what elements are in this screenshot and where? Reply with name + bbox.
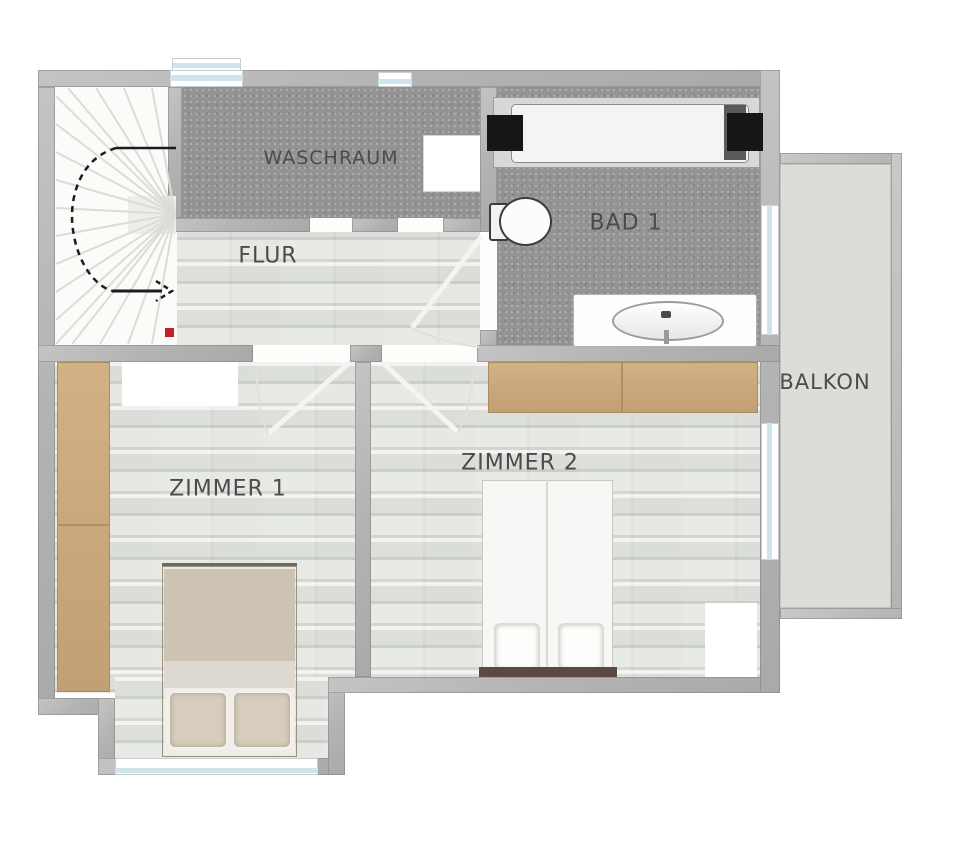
wall-exterior-right — [760, 70, 780, 693]
bathtub-tap-right — [727, 113, 763, 151]
stair-marker — [165, 328, 174, 337]
zimmer2-sideboard — [488, 362, 758, 413]
room-label-zimmer2: ZIMMER 2 — [461, 451, 579, 476]
zimmer2-nightstand — [705, 603, 757, 677]
zimmer1-dresser — [122, 360, 238, 406]
bathtub-basin — [511, 104, 749, 163]
door-opening-zimmer1 — [253, 345, 350, 362]
door-opening-bad1 — [480, 232, 497, 330]
room-label-zimmer1: ZIMMER 1 — [169, 477, 287, 502]
door-opening-zimmer2 — [382, 345, 477, 362]
zimmer1-pillow-left — [167, 690, 229, 750]
zimmer1-bed-sheetband — [164, 661, 295, 688]
wall-exterior-bottom — [328, 677, 777, 693]
wall-waschraum-flur-a — [168, 218, 310, 232]
window-waschraum-top — [170, 70, 243, 87]
window-top-small — [378, 72, 412, 87]
zimmer2-pillow-left — [494, 623, 540, 671]
window-zimmer2-glass — [767, 423, 772, 560]
sink-tap-stem — [664, 330, 669, 344]
balcony-rail-bottom — [780, 608, 902, 619]
wall-waschraum-flur-b — [352, 218, 398, 232]
window-bad1-glass — [767, 205, 772, 335]
wall-zimmer1-zimmer2 — [355, 362, 371, 677]
window-top-sill-glass — [173, 63, 240, 68]
wall-flur-rooms-b — [350, 345, 382, 362]
staircase-floor — [55, 87, 177, 345]
window-waschraum-glass — [170, 75, 243, 81]
sink-tap — [661, 311, 671, 318]
zimmer2-pillow-right — [558, 623, 604, 671]
room-label-waschraum: WASCHRAUM — [263, 147, 398, 169]
floor-plan-canvas: WASCHRAUM FLUR BAD 1 ZIMMER 1 ZIMMER 2 B… — [0, 0, 960, 858]
flur-floor — [177, 218, 480, 345]
door-opening-waschraum-a — [310, 218, 352, 232]
wall-stairs-waschraum — [168, 87, 182, 218]
toilet-bowl — [499, 197, 552, 246]
window-zimmer1-bay — [115, 758, 318, 775]
room-label-bad1: BAD 1 — [589, 211, 662, 236]
wall-flur-rooms-a — [38, 345, 253, 362]
zimmer2-sideboard-seam — [621, 362, 623, 413]
balcony-rail-right — [891, 153, 902, 619]
room-label-flur: FLUR — [238, 244, 297, 269]
zimmer1-bed-duvet — [164, 569, 295, 661]
wall-exterior-left — [38, 87, 55, 715]
wall-bad1-zimmer2 — [477, 345, 780, 362]
waschraum-appliance — [423, 135, 481, 192]
room-label-balkon: BALKON — [779, 370, 870, 394]
zimmer1-wardrobe-seam — [57, 524, 110, 526]
window-top-small-glass — [378, 79, 412, 84]
window-bad1-right — [761, 205, 779, 335]
balcony-rail-top — [780, 153, 902, 164]
door-opening-waschraum-b — [398, 218, 443, 232]
zimmer2-bed-split — [546, 480, 548, 670]
window-zimmer2-right — [761, 423, 779, 560]
zimmer1-pillow-right — [231, 690, 293, 750]
bathtub-tap-left — [487, 115, 523, 151]
zimmer1-wardrobe — [57, 362, 110, 692]
window-zimmer1-bay-glass — [115, 768, 318, 773]
